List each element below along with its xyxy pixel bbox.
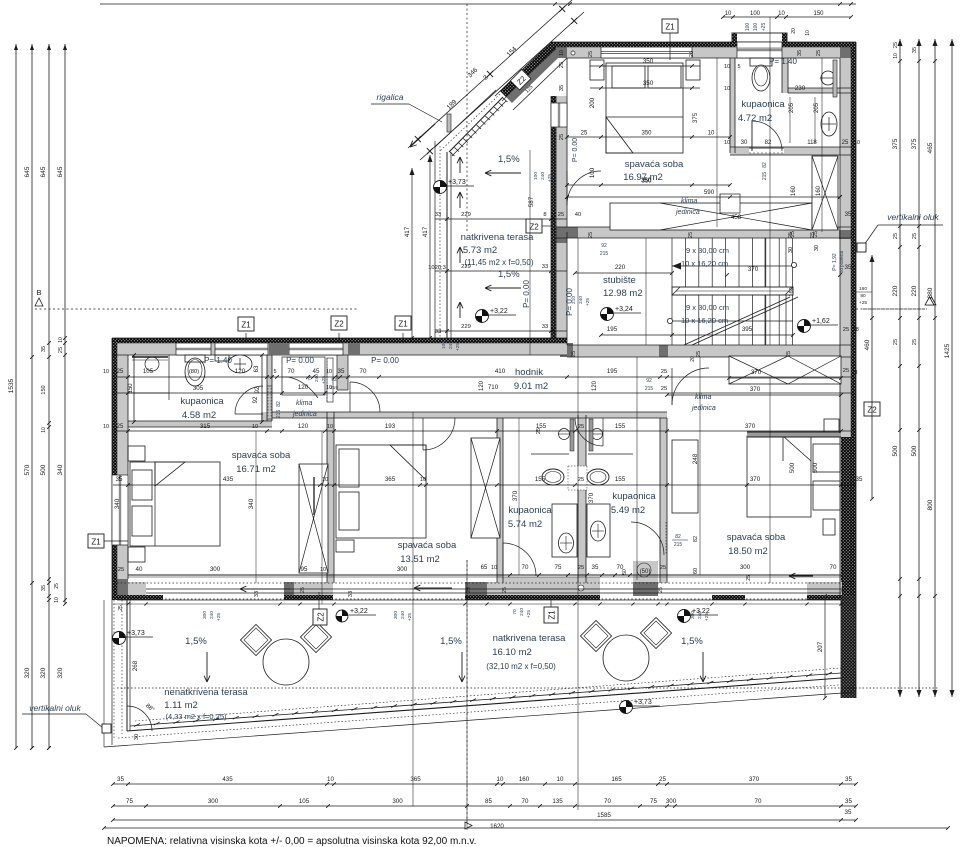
svg-text:160: 160 <box>519 776 530 783</box>
svg-text:25: 25 <box>912 339 918 345</box>
svg-text:10: 10 <box>778 11 785 17</box>
svg-text:25: 25 <box>790 231 796 237</box>
svg-text:370: 370 <box>750 476 761 483</box>
svg-text:natkrivena terasa: natkrivena terasa <box>493 633 567 644</box>
svg-text:220: 220 <box>892 285 899 296</box>
svg-text:155: 155 <box>615 423 626 430</box>
svg-text:9 x 30,00 cm: 9 x 30,00 cm <box>686 246 729 255</box>
svg-text:25: 25 <box>578 424 584 430</box>
svg-text:Z1: Z1 <box>91 538 101 547</box>
svg-text:370: 370 <box>745 423 756 430</box>
svg-text:370: 370 <box>512 490 519 501</box>
svg-text:300: 300 <box>208 798 219 805</box>
svg-text:20: 20 <box>690 356 696 362</box>
svg-text:75: 75 <box>126 798 133 805</box>
svg-text:60: 60 <box>693 568 699 574</box>
svg-text:240: 240 <box>519 608 525 616</box>
svg-text:35: 35 <box>912 47 918 53</box>
svg-text:215: 215 <box>600 251 609 257</box>
svg-text:18.50 m2: 18.50 m2 <box>728 546 768 557</box>
svg-text:klima: klima <box>296 400 312 407</box>
svg-text:45: 45 <box>313 368 320 375</box>
svg-text:70: 70 <box>522 798 529 805</box>
svg-text:370: 370 <box>748 266 759 273</box>
svg-text:1585: 1585 <box>597 812 611 819</box>
svg-text:240: 240 <box>540 172 546 180</box>
svg-text:(4,33 m2 x f=0,25): (4,33 m2 x f=0,25) <box>165 712 227 721</box>
svg-text:33: 33 <box>435 329 441 335</box>
svg-text:150: 150 <box>41 385 47 394</box>
svg-text:kupaonica: kupaonica <box>180 396 224 407</box>
svg-text:340: 340 <box>248 498 255 509</box>
svg-text:10: 10 <box>326 369 332 375</box>
svg-text:25: 25 <box>688 232 694 238</box>
svg-text:229: 229 <box>461 264 471 270</box>
svg-text:500: 500 <box>789 462 796 473</box>
svg-text:70: 70 <box>830 564 837 571</box>
svg-text:jedinica: jedinica <box>691 405 716 412</box>
svg-text:10: 10 <box>724 86 730 92</box>
svg-text:P= 0.00: P= 0.00 <box>371 356 399 365</box>
svg-text:70: 70 <box>755 798 762 805</box>
svg-text:25: 25 <box>658 587 664 593</box>
svg-text:80: 80 <box>860 293 866 299</box>
svg-text:75: 75 <box>555 564 562 571</box>
svg-text:9 x 30,00 cm: 9 x 30,00 cm <box>686 303 729 312</box>
svg-text:jedinica: jedinica <box>292 411 317 418</box>
svg-text:5: 5 <box>273 369 276 375</box>
svg-text:229: 229 <box>461 324 471 330</box>
svg-text:10 x 16,20 cm: 10 x 16,20 cm <box>681 316 728 325</box>
svg-text:(80): (80) <box>189 369 199 375</box>
svg-text:70: 70 <box>360 368 367 375</box>
svg-text:500: 500 <box>892 445 899 456</box>
svg-text:35: 35 <box>117 776 124 783</box>
svg-text:10: 10 <box>252 424 258 430</box>
svg-text:10: 10 <box>327 776 334 783</box>
svg-text:120: 120 <box>298 384 309 391</box>
svg-text:200: 200 <box>589 97 596 108</box>
svg-text:70: 70 <box>512 609 518 615</box>
svg-text:340: 340 <box>114 498 121 509</box>
svg-text:150: 150 <box>813 11 824 17</box>
svg-text:P= 0.00: P= 0.00 <box>286 356 314 365</box>
svg-text:1,5%: 1,5% <box>185 636 207 647</box>
svg-text:350: 350 <box>643 58 654 65</box>
svg-text:10: 10 <box>103 424 109 430</box>
svg-text:25: 25 <box>842 140 849 146</box>
svg-text:1,5%: 1,5% <box>498 154 520 165</box>
svg-text:vertikalni oluk: vertikalni oluk <box>29 703 81 713</box>
svg-text:195: 195 <box>607 326 618 333</box>
svg-text:100: 100 <box>753 23 759 32</box>
svg-text:195: 195 <box>607 368 618 375</box>
svg-text:710: 710 <box>488 384 499 391</box>
svg-text:82: 82 <box>693 536 699 542</box>
svg-text:229: 229 <box>461 212 471 218</box>
svg-text:18: 18 <box>853 327 859 333</box>
svg-text:10: 10 <box>893 53 899 59</box>
svg-text:10: 10 <box>805 30 811 36</box>
svg-text:25: 25 <box>559 62 565 68</box>
svg-text:120: 120 <box>298 423 309 430</box>
svg-text:P= 0.00: P= 0.00 <box>565 288 574 316</box>
svg-text:92: 92 <box>255 386 261 393</box>
svg-text:klima: klima <box>681 198 697 205</box>
svg-text:1535: 1535 <box>8 378 15 393</box>
svg-text:240: 240 <box>209 611 215 619</box>
svg-text:+25: +25 <box>585 298 591 306</box>
svg-text:92: 92 <box>253 396 259 403</box>
svg-text:25: 25 <box>581 131 588 137</box>
svg-text:35: 35 <box>845 798 852 805</box>
svg-text:33: 33 <box>348 591 354 597</box>
svg-text:13.51 m2: 13.51 m2 <box>400 554 440 565</box>
svg-text:25: 25 <box>558 212 564 218</box>
svg-text:100: 100 <box>589 167 596 178</box>
svg-text:25: 25 <box>893 233 899 239</box>
svg-text:kupaonica: kupaonica <box>508 505 552 516</box>
svg-text:570: 570 <box>24 464 31 475</box>
svg-text:375: 375 <box>911 138 918 149</box>
svg-text:5.49 m2: 5.49 m2 <box>611 505 645 516</box>
svg-text:1,5%: 1,5% <box>440 636 462 647</box>
svg-text:300: 300 <box>393 611 399 619</box>
svg-text:25: 25 <box>843 327 849 333</box>
svg-text:30: 30 <box>788 247 794 253</box>
svg-text:340: 340 <box>57 464 64 475</box>
svg-text:435: 435 <box>223 476 234 483</box>
svg-text:+3,22: +3,22 <box>692 608 710 615</box>
svg-text:10: 10 <box>103 369 109 375</box>
svg-text:465: 465 <box>927 142 934 153</box>
svg-text:25: 25 <box>746 575 752 581</box>
svg-text:+25: +25 <box>407 613 413 621</box>
svg-text:135: 135 <box>552 798 563 805</box>
svg-text:10 x 16,20 cm: 10 x 16,20 cm <box>681 259 728 268</box>
svg-text:10: 10 <box>724 64 730 70</box>
svg-text:kupaonica: kupaonica <box>741 99 785 110</box>
svg-text:spavaća soba: spavaća soba <box>727 532 786 543</box>
svg-text:220: 220 <box>911 285 918 296</box>
svg-text:155: 155 <box>535 476 546 483</box>
svg-text:92: 92 <box>601 243 607 249</box>
svg-text:25: 25 <box>502 587 508 593</box>
svg-text:160: 160 <box>859 286 867 292</box>
svg-text:33: 33 <box>542 324 548 330</box>
svg-text:rigalica: rigalica <box>377 92 404 102</box>
svg-text:75: 75 <box>650 798 657 805</box>
svg-text:460: 460 <box>864 339 871 350</box>
svg-text:65: 65 <box>481 565 488 571</box>
svg-text:B: B <box>36 288 41 297</box>
svg-text:645: 645 <box>24 166 31 177</box>
svg-text:+3,73: +3,73 <box>634 699 652 706</box>
svg-text:10: 10 <box>724 140 730 146</box>
svg-text:305: 305 <box>193 385 204 392</box>
svg-text:645: 645 <box>40 166 47 177</box>
svg-text:P= 1.40: P= 1.40 <box>769 57 797 66</box>
svg-text:jedinica: jedinica <box>675 209 700 216</box>
svg-text:25: 25 <box>659 776 666 783</box>
svg-text:240: 240 <box>448 341 454 349</box>
svg-text:25: 25 <box>588 51 594 57</box>
svg-text:25: 25 <box>578 477 584 483</box>
svg-text:240: 240 <box>578 296 584 304</box>
svg-text:10: 10 <box>559 50 565 56</box>
svg-text:35: 35 <box>338 368 345 375</box>
svg-text:35: 35 <box>592 564 599 571</box>
svg-text:10: 10 <box>497 776 504 783</box>
svg-text:Z2: Z2 <box>317 612 326 622</box>
svg-text:10: 10 <box>322 477 328 483</box>
svg-text:Z2: Z2 <box>334 320 344 329</box>
svg-text:vertikalni oluk: vertikalni oluk <box>887 212 939 222</box>
svg-text:350: 350 <box>643 80 654 87</box>
svg-text:30: 30 <box>134 734 140 740</box>
svg-text:500: 500 <box>812 462 819 473</box>
svg-text:spavaća soba: spavaća soba <box>398 540 457 551</box>
svg-text:100: 100 <box>745 23 751 32</box>
svg-text:350: 350 <box>641 177 652 184</box>
svg-text:365: 365 <box>410 776 421 783</box>
svg-text:155: 155 <box>615 476 626 483</box>
svg-text:NAPOMENA: relativna visinska k: NAPOMENA: relativna visinska kota +/- 0,… <box>107 836 476 847</box>
svg-text:370: 370 <box>750 386 761 393</box>
svg-text:82: 82 <box>762 162 768 168</box>
svg-text:25: 25 <box>661 386 667 392</box>
svg-text:268: 268 <box>132 660 139 671</box>
svg-text:8: 8 <box>543 212 546 218</box>
svg-text:35: 35 <box>41 346 47 352</box>
svg-text:70: 70 <box>288 368 295 375</box>
svg-text:35: 35 <box>41 585 47 591</box>
svg-text:350: 350 <box>641 131 652 137</box>
svg-text:+3,22: +3,22 <box>490 308 508 315</box>
svg-text:25: 25 <box>578 565 584 571</box>
svg-text:587: 587 <box>528 196 535 207</box>
svg-text:12.98 m2: 12.98 m2 <box>603 288 643 299</box>
svg-text:248: 248 <box>692 453 699 464</box>
svg-text:25: 25 <box>118 605 124 611</box>
svg-text:70: 70 <box>522 564 529 571</box>
svg-text:100: 100 <box>533 172 539 180</box>
svg-text:1.11 m2: 1.11 m2 <box>164 700 198 711</box>
svg-text:40: 40 <box>136 566 143 573</box>
svg-text:5.74 m2: 5.74 m2 <box>508 519 542 530</box>
svg-text:215: 215 <box>645 386 654 392</box>
svg-text:25: 25 <box>300 587 306 593</box>
svg-text:150: 150 <box>128 383 134 394</box>
svg-text:4.72 m2: 4.72 m2 <box>738 113 772 124</box>
svg-text:+3,22: +3,22 <box>350 608 368 615</box>
svg-text:25: 25 <box>117 369 124 375</box>
svg-text:9.01 m2: 9.01 m2 <box>514 381 548 392</box>
svg-text:25: 25 <box>689 51 695 57</box>
svg-text:25: 25 <box>813 231 819 237</box>
svg-text:10: 10 <box>854 140 860 146</box>
svg-text:Z2: Z2 <box>529 223 539 232</box>
svg-text:10: 10 <box>557 776 564 783</box>
svg-text:Z1: Z1 <box>398 320 408 329</box>
svg-text:P= 0.00: P= 0.00 <box>572 138 579 162</box>
svg-text:+25: +25 <box>216 613 222 621</box>
svg-text:(50): (50) <box>640 569 651 575</box>
svg-text:458: 458 <box>731 214 742 221</box>
svg-text:P= 0.00: P= 0.00 <box>522 280 531 308</box>
svg-text:25: 25 <box>661 369 667 375</box>
svg-text:Z1: Z1 <box>665 23 675 32</box>
svg-text:230: 230 <box>795 85 806 92</box>
svg-text:10: 10 <box>725 11 732 17</box>
svg-text:70: 70 <box>604 798 611 805</box>
svg-text:375: 375 <box>892 138 899 149</box>
svg-text:35: 35 <box>856 476 863 483</box>
svg-text:5.73 m2: 5.73 m2 <box>463 245 497 256</box>
svg-text:25: 25 <box>54 583 60 589</box>
svg-text:82: 82 <box>765 140 772 146</box>
svg-text:160: 160 <box>789 287 795 296</box>
svg-text:25: 25 <box>559 134 565 140</box>
svg-text:25: 25 <box>841 587 847 593</box>
svg-text:120: 120 <box>479 380 485 391</box>
svg-text:300: 300 <box>666 798 677 805</box>
svg-text:320: 320 <box>57 667 64 678</box>
svg-text:spavaća soba: spavaća soba <box>625 159 684 170</box>
svg-text:85: 85 <box>485 798 492 805</box>
svg-text:800: 800 <box>927 499 934 510</box>
svg-text:25: 25 <box>893 42 899 48</box>
svg-text:+3,73: +3,73 <box>448 179 466 186</box>
svg-text:25: 25 <box>816 50 822 56</box>
svg-text:1620: 1620 <box>490 823 504 830</box>
svg-text:300: 300 <box>210 566 221 573</box>
svg-text:25: 25 <box>117 424 124 430</box>
svg-text:+1,62: +1,62 <box>812 318 830 325</box>
svg-text:300: 300 <box>392 798 403 805</box>
svg-text:30: 30 <box>741 140 748 146</box>
svg-text:33: 33 <box>542 264 548 270</box>
svg-text:30: 30 <box>814 245 820 251</box>
svg-text:365: 365 <box>385 476 396 483</box>
svg-text:300: 300 <box>740 564 751 571</box>
svg-text:63: 63 <box>254 365 260 372</box>
svg-text:P= 1,92: P= 1,92 <box>832 253 838 271</box>
svg-text:370: 370 <box>588 492 595 503</box>
svg-text:50: 50 <box>622 569 628 575</box>
svg-text:215: 215 <box>762 172 768 181</box>
svg-text:10: 10 <box>327 424 333 430</box>
svg-text:120: 120 <box>235 368 246 375</box>
svg-text:25: 25 <box>588 232 594 238</box>
svg-text:320: 320 <box>40 667 47 678</box>
svg-text:od podesta: od podesta <box>839 250 844 273</box>
svg-text:natkrivena terasa: natkrivena terasa <box>461 232 535 243</box>
svg-text:645: 645 <box>57 166 64 177</box>
svg-text:370: 370 <box>751 369 762 376</box>
svg-text:+25: +25 <box>455 343 461 351</box>
svg-text:35: 35 <box>797 50 803 56</box>
svg-text:25: 25 <box>571 351 577 357</box>
svg-text:10: 10 <box>54 597 60 603</box>
svg-text:375: 375 <box>692 112 699 123</box>
svg-text:320: 320 <box>24 667 31 678</box>
svg-text:25: 25 <box>660 565 666 571</box>
svg-text:10: 10 <box>708 131 715 137</box>
svg-text:120: 120 <box>592 380 598 391</box>
svg-text:5: 5 <box>737 64 740 70</box>
svg-text:417: 417 <box>422 226 429 237</box>
svg-text:+3,24: +3,24 <box>615 306 633 313</box>
svg-text:25: 25 <box>118 567 124 573</box>
svg-text:+25: +25 <box>526 610 532 618</box>
svg-text:+25: +25 <box>761 23 767 32</box>
svg-text:1020;3: 1020;3 <box>428 265 446 271</box>
svg-text:500: 500 <box>40 464 47 475</box>
svg-text:95: 95 <box>301 566 308 573</box>
svg-text:240: 240 <box>400 611 406 619</box>
svg-text:spavaća soba: spavaća soba <box>232 450 291 461</box>
svg-text:10: 10 <box>491 565 497 571</box>
svg-text:10: 10 <box>320 567 326 573</box>
svg-text:10: 10 <box>326 385 332 391</box>
svg-text:10: 10 <box>58 337 64 343</box>
svg-text:(32,10 m2 x f=0,50): (32,10 m2 x f=0,50) <box>486 662 556 671</box>
svg-text:35: 35 <box>845 264 852 271</box>
svg-text:25: 25 <box>536 428 542 434</box>
svg-text:82: 82 <box>675 534 681 540</box>
svg-text:25: 25 <box>893 339 899 345</box>
svg-text:410: 410 <box>495 368 506 375</box>
svg-text:stubište: stubište <box>603 275 636 286</box>
svg-text:33: 33 <box>254 591 260 597</box>
svg-text:215: 215 <box>276 410 282 419</box>
svg-text:100: 100 <box>750 11 761 17</box>
svg-text:417: 417 <box>404 226 411 237</box>
svg-text:10: 10 <box>420 477 426 483</box>
svg-text:P= 1.40: P= 1.40 <box>204 356 232 365</box>
svg-text:880: 880 <box>927 287 934 298</box>
svg-text:40: 40 <box>575 212 581 218</box>
svg-text:16.10 m2: 16.10 m2 <box>492 647 532 658</box>
svg-text:10: 10 <box>41 427 47 433</box>
svg-text:35: 35 <box>116 476 123 483</box>
svg-text:+25: +25 <box>547 174 553 182</box>
svg-text:+3,73: +3,73 <box>127 630 145 637</box>
svg-text:35: 35 <box>845 212 852 218</box>
svg-text:395: 395 <box>742 326 753 333</box>
svg-text:20: 20 <box>791 28 797 34</box>
svg-text:215: 215 <box>674 542 683 548</box>
svg-text:105: 105 <box>299 798 310 805</box>
svg-text:25: 25 <box>843 368 849 374</box>
svg-text:160: 160 <box>791 185 797 196</box>
svg-text:82: 82 <box>276 401 282 407</box>
svg-text:370: 370 <box>749 776 760 783</box>
svg-text:92: 92 <box>646 378 652 384</box>
svg-text:25: 25 <box>912 233 918 239</box>
svg-text:500: 500 <box>911 445 918 456</box>
svg-text:hodnik: hodnik <box>515 367 543 378</box>
svg-text:435: 435 <box>222 776 233 783</box>
svg-text:Z1: Z1 <box>548 610 557 620</box>
svg-text:nenatkrivena terasa: nenatkrivena terasa <box>164 687 248 698</box>
svg-text:35: 35 <box>559 85 565 91</box>
svg-text:8: 8 <box>855 370 858 376</box>
svg-text:4.58 m2: 4.58 m2 <box>182 410 216 421</box>
svg-text:25: 25 <box>58 347 64 353</box>
svg-text:kupaonica: kupaonica <box>612 491 656 502</box>
